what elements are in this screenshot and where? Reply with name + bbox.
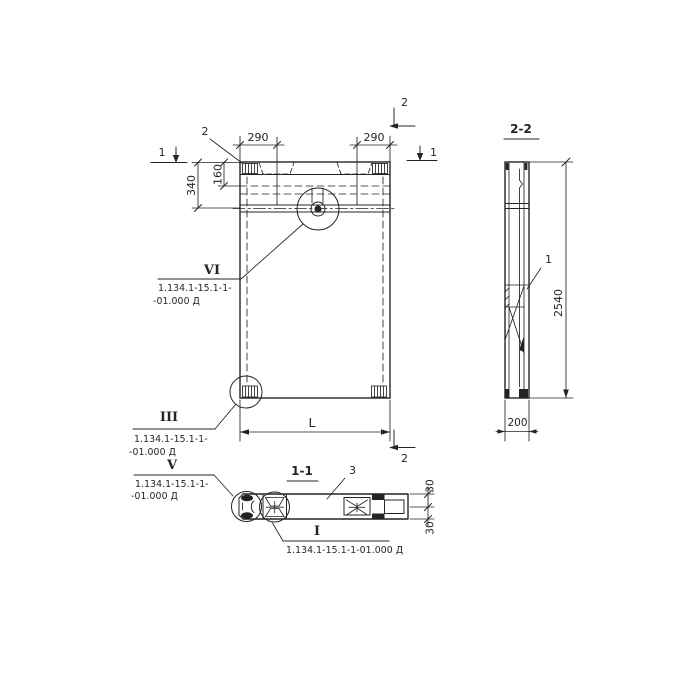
panel-drawing: 290 290 340 160 1 1: [0, 0, 700, 700]
bar-channel-element: [344, 498, 370, 516]
section-2-2: 2-2 1 200: [496, 122, 573, 441]
part-label-3-text: 3: [349, 464, 356, 477]
dim-L-label: L: [309, 415, 316, 430]
section-1-1: 1-1 3: [131, 458, 437, 556]
panel-outline: [240, 162, 390, 398]
section-mark-2-top-label: 2: [401, 96, 408, 109]
section-mark-1-left: 1: [151, 146, 187, 163]
bottom-hatch-left: [243, 386, 258, 397]
callout-vi-numeral: VI: [203, 263, 220, 278]
callout-i-numeral: I: [314, 524, 320, 539]
dim-L: L: [240, 400, 390, 441]
callout-iii-line1: 1.134.1-15.1-1-: [134, 434, 208, 445]
bar-insert-detail: [260, 492, 290, 522]
dim-30-pair: 30 30: [410, 479, 437, 534]
top-hatch-right: [373, 164, 388, 174]
bar-left-end-detail: [232, 492, 262, 522]
section-mark-2-bottom-label: 2: [401, 452, 408, 465]
dim-340-label: 340: [185, 175, 198, 196]
top-hatch-left: [243, 164, 258, 174]
dim-160: 160: [212, 159, 241, 190]
section-mark-1-right: 1: [407, 146, 437, 161]
drawing-canvas: 290 290 340 160 1 1: [0, 0, 700, 700]
dim-200-label: 200: [507, 417, 527, 429]
front-view-dimensions: 290 290 340 160 1 1: [129, 96, 437, 465]
callout-iii: III 1.134.1-15.1-1- -01.000 Д: [129, 404, 236, 458]
dim-200: 200: [496, 400, 538, 441]
part-label-1-text: 1: [545, 253, 552, 266]
callout-vi: VI 1.134.1-15.1-1- -01.000 Д: [153, 224, 303, 307]
dim-160-label: 160: [212, 164, 225, 185]
callout-v: V 1.134.1-15.1-1- -01.000 Д: [131, 458, 233, 502]
bottom-hatch-right: [372, 386, 387, 397]
section-2-2-title-text: 2-2: [510, 122, 532, 136]
dim-290-right-label: 290: [364, 131, 385, 144]
callout-v-numeral: V: [166, 458, 178, 473]
section-1-1-title: 1-1: [287, 464, 318, 481]
section-1-1-title-text: 1-1: [291, 464, 313, 478]
callout-iii-line2: -01.000 Д: [129, 447, 176, 458]
column-bottom-marks: [506, 389, 529, 398]
callout-v-line2: -01.000 Д: [131, 491, 178, 502]
callout-i: I 1.134.1-15.1-1-01.000 Д: [273, 523, 404, 556]
part-label-1: 1: [527, 253, 552, 289]
section-mark-1-left-label: 1: [159, 146, 166, 159]
dim-290-left-label: 290: [248, 131, 269, 144]
column-body: [505, 162, 529, 398]
recess-left: [259, 163, 294, 175]
dim-290-left: 290: [233, 131, 284, 162]
callout-vi-line1: 1.134.1-15.1-1-: [158, 283, 232, 294]
recess-right: [337, 163, 372, 175]
section-mark-1-right-label: 1: [430, 146, 437, 159]
section-2-2-title: 2-2: [504, 122, 539, 139]
recess-axis-lines: [277, 137, 357, 205]
section-mark-2-top: 2: [389, 96, 415, 129]
section-mark-2-bottom: 2: [389, 430, 415, 465]
callout-v-line1: 1.134.1-15.1-1-: [135, 479, 209, 490]
dim-2540: 2540: [530, 158, 573, 398]
callout-vi-line2: -01.000 Д: [153, 296, 200, 307]
front-view: [230, 137, 397, 408]
dim-30-bottom-label: 30: [425, 521, 437, 534]
part-label-2-text: 2: [202, 125, 209, 138]
callout-i-line1: 1.134.1-15.1-1-01.000 Д: [286, 545, 403, 556]
dim-30-top-label: 30: [425, 479, 437, 492]
part-label-2: 2: [202, 125, 243, 163]
dim-2540-label: 2540: [552, 289, 565, 317]
bar-right-end-detail: [372, 495, 404, 520]
callout-iii-numeral: III: [160, 410, 178, 425]
